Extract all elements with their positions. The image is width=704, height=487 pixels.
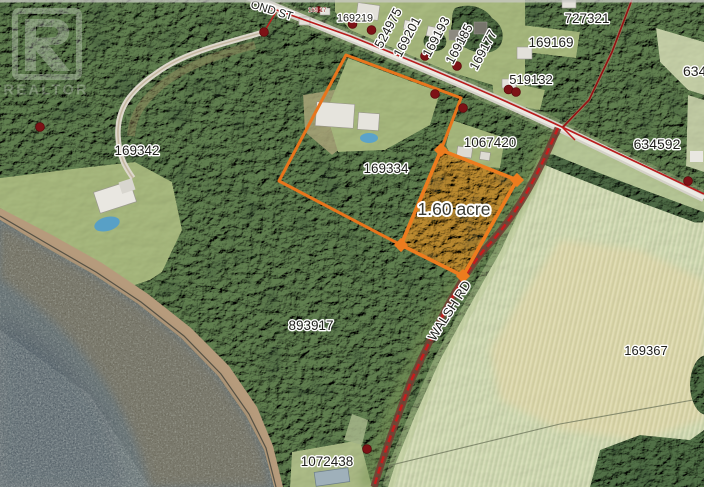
- svg-text:893917: 893917: [288, 318, 333, 333]
- svg-text:727321: 727321: [564, 11, 609, 26]
- svg-text:519132: 519132: [509, 72, 552, 87]
- svg-text:169 17: 169 17: [308, 8, 327, 14]
- svg-text:169334: 169334: [363, 161, 409, 176]
- svg-text:1067420: 1067420: [464, 135, 517, 150]
- svg-text:634592: 634592: [634, 136, 681, 152]
- svg-text:634: 634: [683, 63, 704, 79]
- svg-text:169169: 169169: [528, 35, 573, 50]
- svg-text:1072438: 1072438: [301, 454, 354, 469]
- svg-text:169367: 169367: [624, 343, 667, 358]
- svg-text:169342: 169342: [114, 143, 159, 158]
- svg-text:REALTOR: REALTOR: [4, 83, 90, 99]
- svg-text:169219: 169219: [337, 13, 373, 25]
- svg-text:1.60 acre: 1.60 acre: [418, 199, 491, 219]
